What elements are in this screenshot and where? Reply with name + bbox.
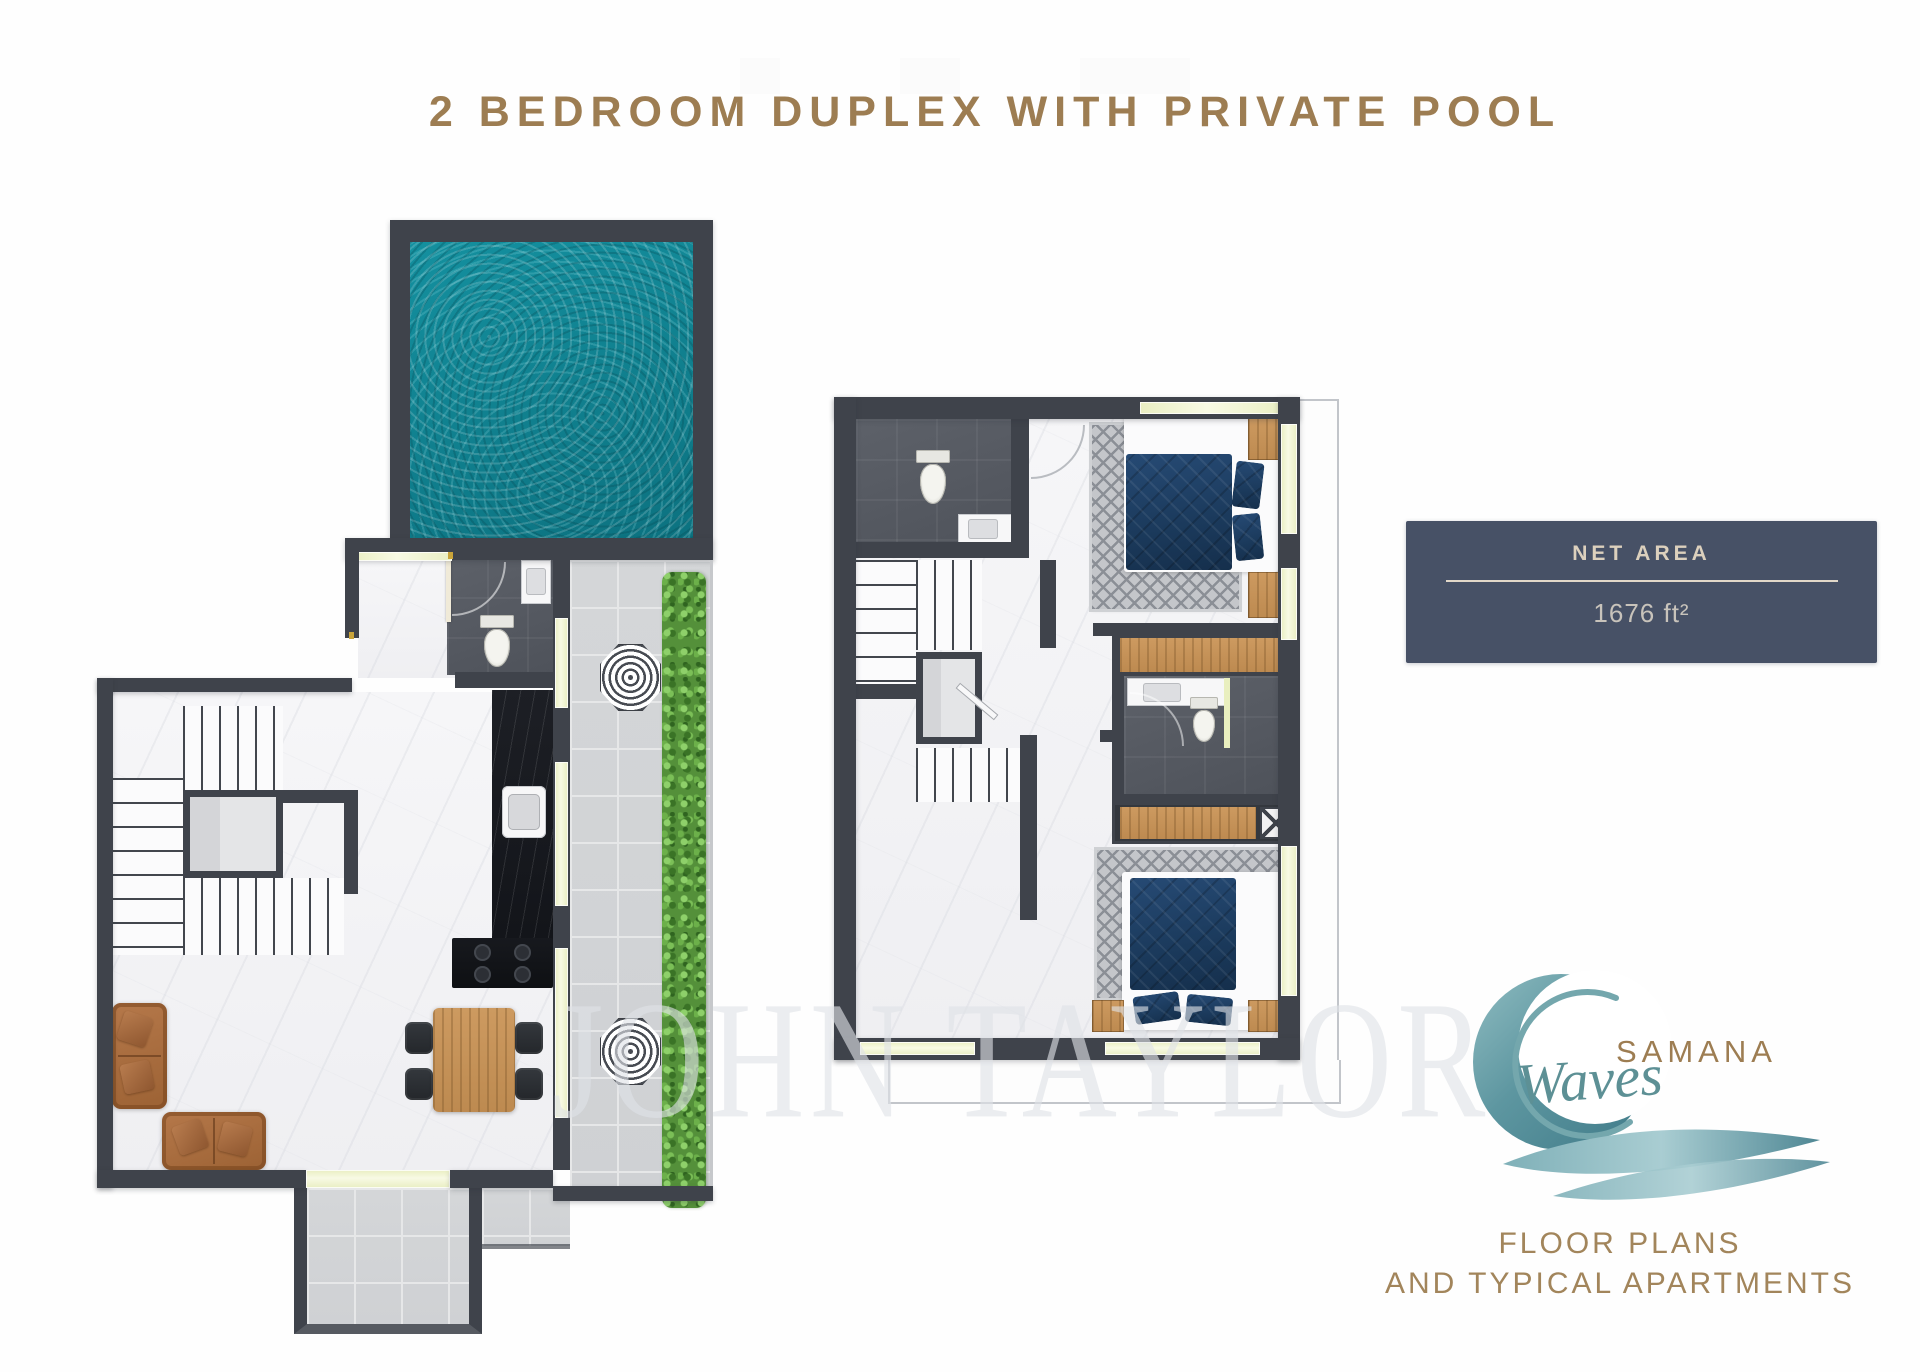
- net-area-divider: [1446, 580, 1838, 582]
- net-area-value: 1676 ft²: [1406, 598, 1877, 629]
- sink-basin: [508, 794, 540, 830]
- bedroom-window: [1140, 402, 1288, 414]
- exterior-wall-upper-left: [97, 678, 352, 692]
- bed-pillow: [1231, 460, 1264, 509]
- exterior-wall-left: [834, 397, 856, 1060]
- stairs-lower-flight: [183, 878, 344, 955]
- hallway-wall: [1020, 735, 1037, 920]
- dining-chair: [515, 1068, 543, 1100]
- stairs-void: [183, 790, 283, 878]
- stairs-upper-flight: [916, 560, 982, 650]
- upper-bathroom-wall: [856, 542, 1028, 558]
- terrace-bottom-wall: [553, 1186, 713, 1201]
- side-window: [1281, 846, 1297, 996]
- footer-line2: AND TYPICAL APARTMENTS: [1380, 1264, 1860, 1304]
- toilet-icon: [916, 450, 950, 463]
- stairs-void-panel: [190, 797, 220, 871]
- brochure-page: 2 BEDROOM DUPLEX WITH PRIVATE POOL: [0, 0, 1920, 1372]
- terrace-window: [555, 948, 568, 1118]
- bathroom-wall: [455, 672, 553, 688]
- dining-chair: [405, 1068, 433, 1100]
- shower-glass: [1224, 678, 1230, 748]
- wardrobe: [1112, 802, 1300, 844]
- door-hinge: [448, 552, 453, 559]
- stairs-upper-flight: [183, 706, 283, 790]
- brand-logo: SAMANA Waves: [1458, 946, 1858, 1246]
- bed-pillow: [1185, 994, 1234, 1027]
- hedge-plants: [662, 572, 706, 1208]
- living-window: [306, 1170, 450, 1188]
- toilet-icon: [1190, 697, 1218, 709]
- umbrella-icon: [600, 644, 661, 711]
- side-window: [1281, 568, 1297, 640]
- bottom-window: [860, 1042, 975, 1055]
- sink-vanity: [521, 560, 551, 604]
- exterior-wall-bottom: [97, 1170, 306, 1188]
- interior-wall: [345, 538, 359, 638]
- side-yard-edge: [482, 1244, 570, 1249]
- dining-table: [433, 1008, 515, 1112]
- balcony-outline-bottom: [888, 1060, 1341, 1104]
- burner: [514, 944, 531, 961]
- pool-water: [410, 242, 693, 538]
- bed-duvet: [1126, 454, 1232, 570]
- toilet-icon: [480, 615, 514, 628]
- closet: [1112, 634, 1287, 676]
- kitchen-sink-icon: [502, 786, 546, 838]
- exterior-wall-bottom: [450, 1170, 553, 1188]
- burner: [514, 966, 531, 983]
- burner: [474, 966, 491, 983]
- stairs-lower-flight: [916, 748, 1020, 802]
- sink-icon: [526, 568, 546, 595]
- terrace-edge-line: [710, 560, 713, 1186]
- sofa-pillow: [119, 1059, 155, 1095]
- net-area-badge: NET AREA 1676 ft²: [1406, 521, 1877, 663]
- side-window: [1281, 424, 1297, 534]
- sofa-seam: [118, 1055, 161, 1057]
- stove-icon: [452, 938, 553, 988]
- umbrella-icon: [600, 1018, 661, 1085]
- nightstand: [1248, 1000, 1280, 1032]
- sink-icon: [968, 519, 998, 539]
- bathroom-door-leaf: [446, 556, 451, 622]
- entry-window: [352, 552, 452, 561]
- page-title: 2 BEDROOM DUPLEX WITH PRIVATE POOL: [70, 88, 1920, 137]
- bed-duvet: [1130, 878, 1236, 990]
- net-area-label: NET AREA: [1406, 542, 1877, 566]
- stairs-left-flight: [113, 778, 183, 955]
- stairs-wall: [1040, 560, 1056, 648]
- burner: [474, 944, 491, 961]
- stairs-wall: [344, 790, 358, 894]
- bottom-window: [1105, 1042, 1260, 1055]
- stairs-left-flight: [856, 560, 916, 684]
- sofa-seam: [213, 1118, 215, 1164]
- terrace-window: [555, 618, 568, 708]
- stairs-void-panel: [923, 659, 941, 737]
- dining-chair: [405, 1022, 433, 1054]
- closet-shelf: [1120, 638, 1279, 672]
- wardrobe-shelf: [1120, 807, 1256, 839]
- nightstand: [1092, 1000, 1124, 1032]
- ensuite-wall: [1100, 730, 1124, 742]
- sink-vanity: [958, 514, 1014, 544]
- bed-pillow: [1232, 513, 1265, 562]
- footer-caption: FLOOR PLANS AND TYPICAL APARTMENTS: [1380, 1224, 1860, 1303]
- footer-line1: FLOOR PLANS: [1380, 1224, 1860, 1264]
- balcony-outline-side: [1300, 399, 1339, 1062]
- entry-patio: [294, 1188, 482, 1334]
- terrace-window: [555, 762, 568, 906]
- brand-script: Waves: [1514, 1042, 1664, 1117]
- dining-chair: [515, 1022, 543, 1054]
- door-hinge: [349, 632, 354, 639]
- exterior-wall-left: [97, 678, 113, 1188]
